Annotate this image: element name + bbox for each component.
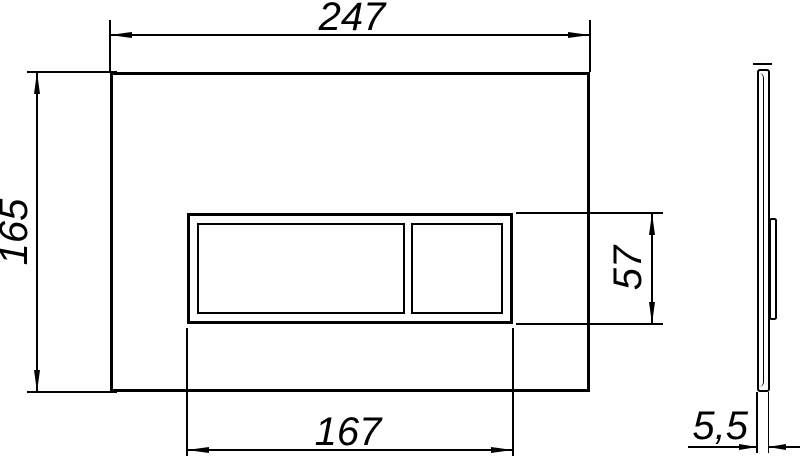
side-view-top-edge-line [753,63,772,65]
extension-line [516,323,663,325]
button-protrusion-side [769,218,777,320]
arrowhead-icon [649,302,655,324]
extension-line [27,71,117,73]
small-flush-button [411,223,503,314]
extension-line [589,20,591,72]
dimension-label-overall-height: 165 [0,152,34,312]
arrowhead-icon [34,72,40,94]
arrowhead-icon [110,32,132,38]
extension-line [512,328,514,456]
extension-line [109,20,111,72]
dimension-label-thickness: 5,5 [628,406,748,446]
dimension-line-overall-height [36,72,38,392]
plate-front-face-edge-line [757,73,764,387]
large-flush-button [197,223,405,314]
dimension-label-panel-height: 57 [608,213,648,323]
arrowhead-icon [34,370,40,392]
arrowhead-icon [768,444,786,450]
arrowhead-icon [568,32,590,38]
dimension-label-panel-width: 167 [268,412,428,452]
dimension-label-overall-width: 247 [272,0,432,37]
arrowhead-icon [187,447,209,453]
arrowhead-icon [649,213,655,235]
extension-line [186,328,188,456]
extension-line [27,391,117,393]
arrowhead-icon [491,447,513,453]
dimension-drawing: 247 165 167 57 5,5 [0,0,800,456]
